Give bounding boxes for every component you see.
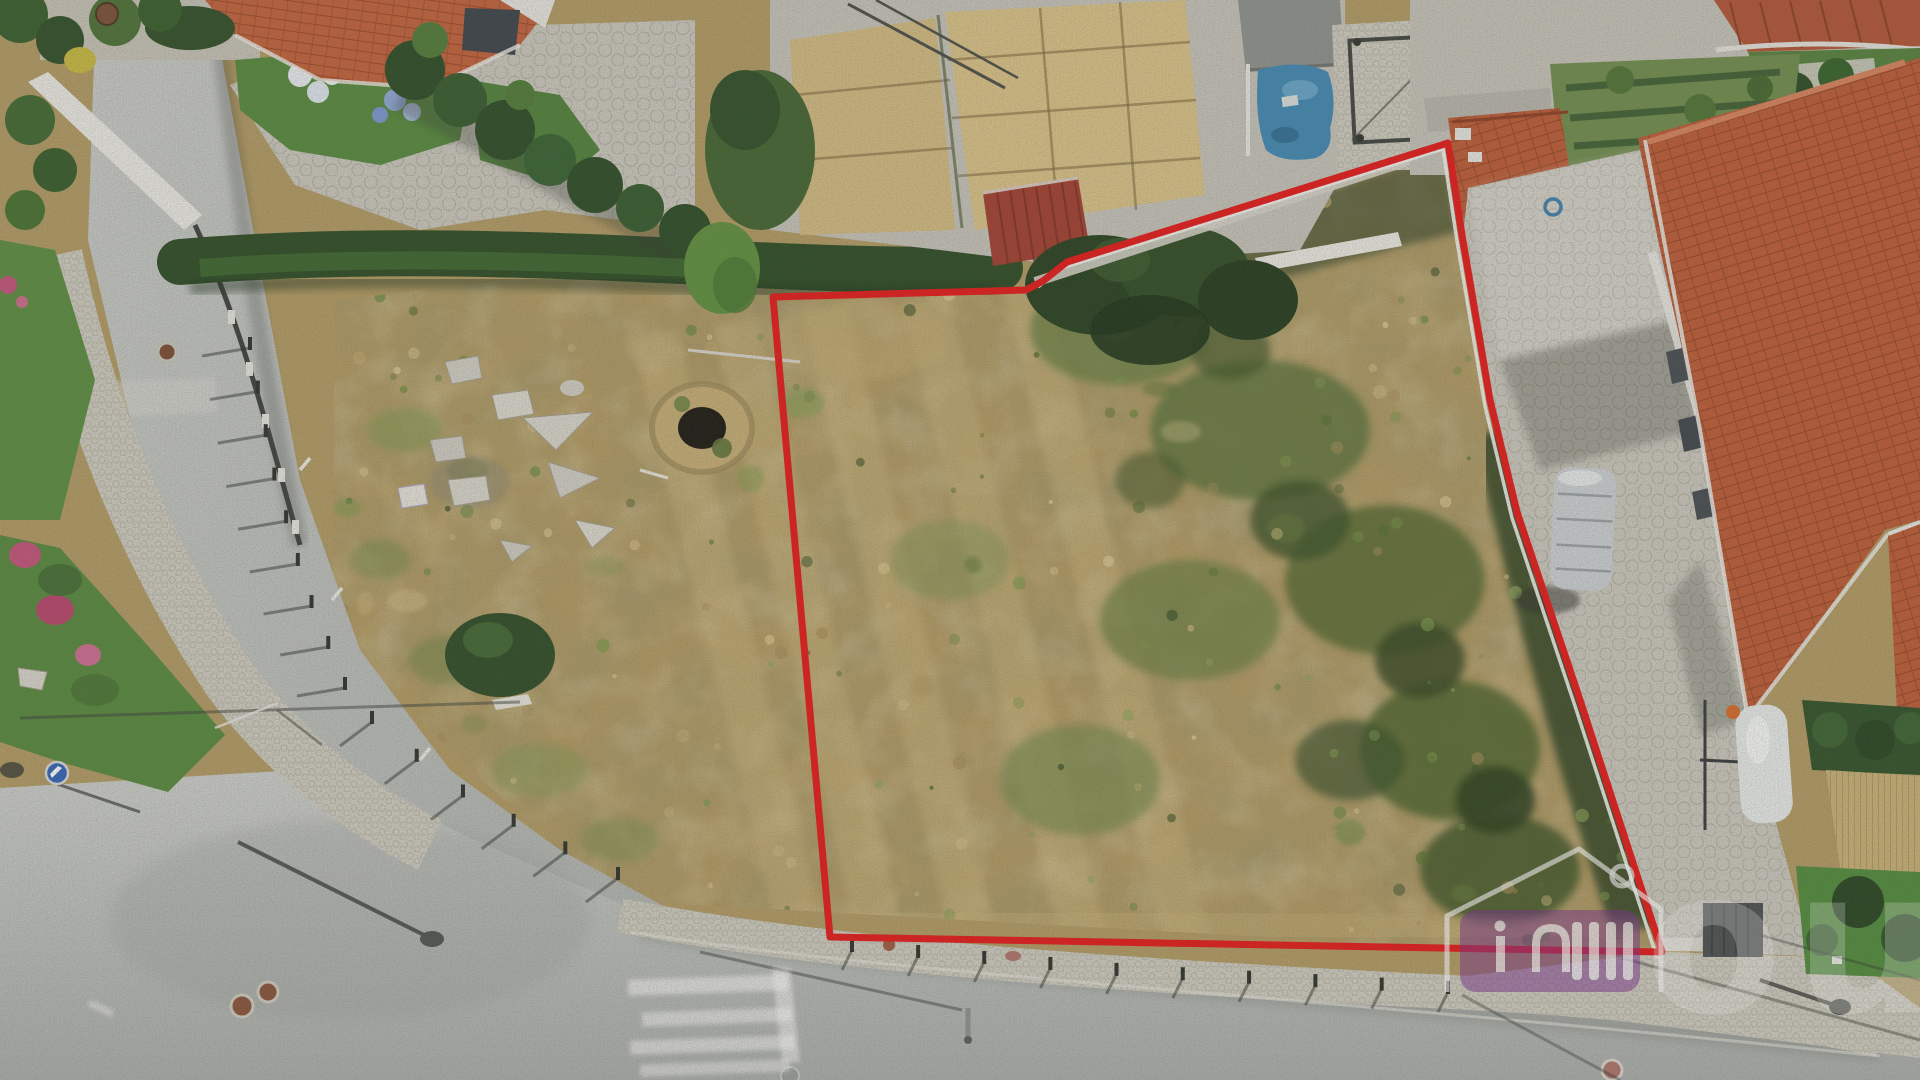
aerial-photo-canvas: out (0, 0, 1920, 1080)
photo-grain (0, 0, 1920, 1080)
aerial-photo: out (0, 0, 1920, 1080)
